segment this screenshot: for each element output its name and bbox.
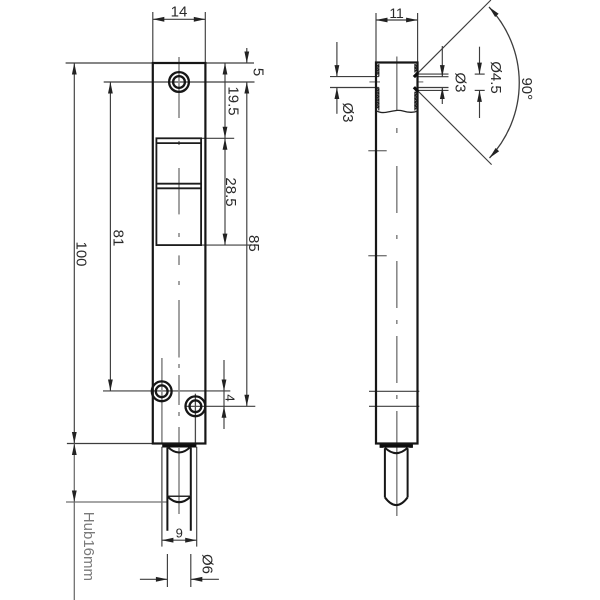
svg-text:28.5: 28.5: [222, 177, 239, 206]
svg-text:Hub16mm: Hub16mm: [80, 512, 97, 581]
svg-text:100: 100: [72, 241, 89, 266]
svg-text:9: 9: [176, 526, 183, 541]
svg-text:4: 4: [223, 394, 238, 401]
svg-text:Ø4.5: Ø4.5: [487, 61, 504, 94]
svg-text:14: 14: [171, 4, 188, 21]
svg-text:90°: 90°: [518, 77, 535, 100]
svg-text:11: 11: [389, 5, 404, 21]
svg-text:85: 85: [245, 235, 262, 252]
svg-text:Ø3: Ø3: [452, 72, 469, 92]
svg-text:19.5: 19.5: [224, 86, 241, 115]
svg-text:5: 5: [249, 68, 266, 76]
svg-text:Ø3: Ø3: [339, 102, 356, 122]
svg-text:Ø6: Ø6: [199, 554, 216, 574]
svg-text:81: 81: [109, 230, 126, 247]
